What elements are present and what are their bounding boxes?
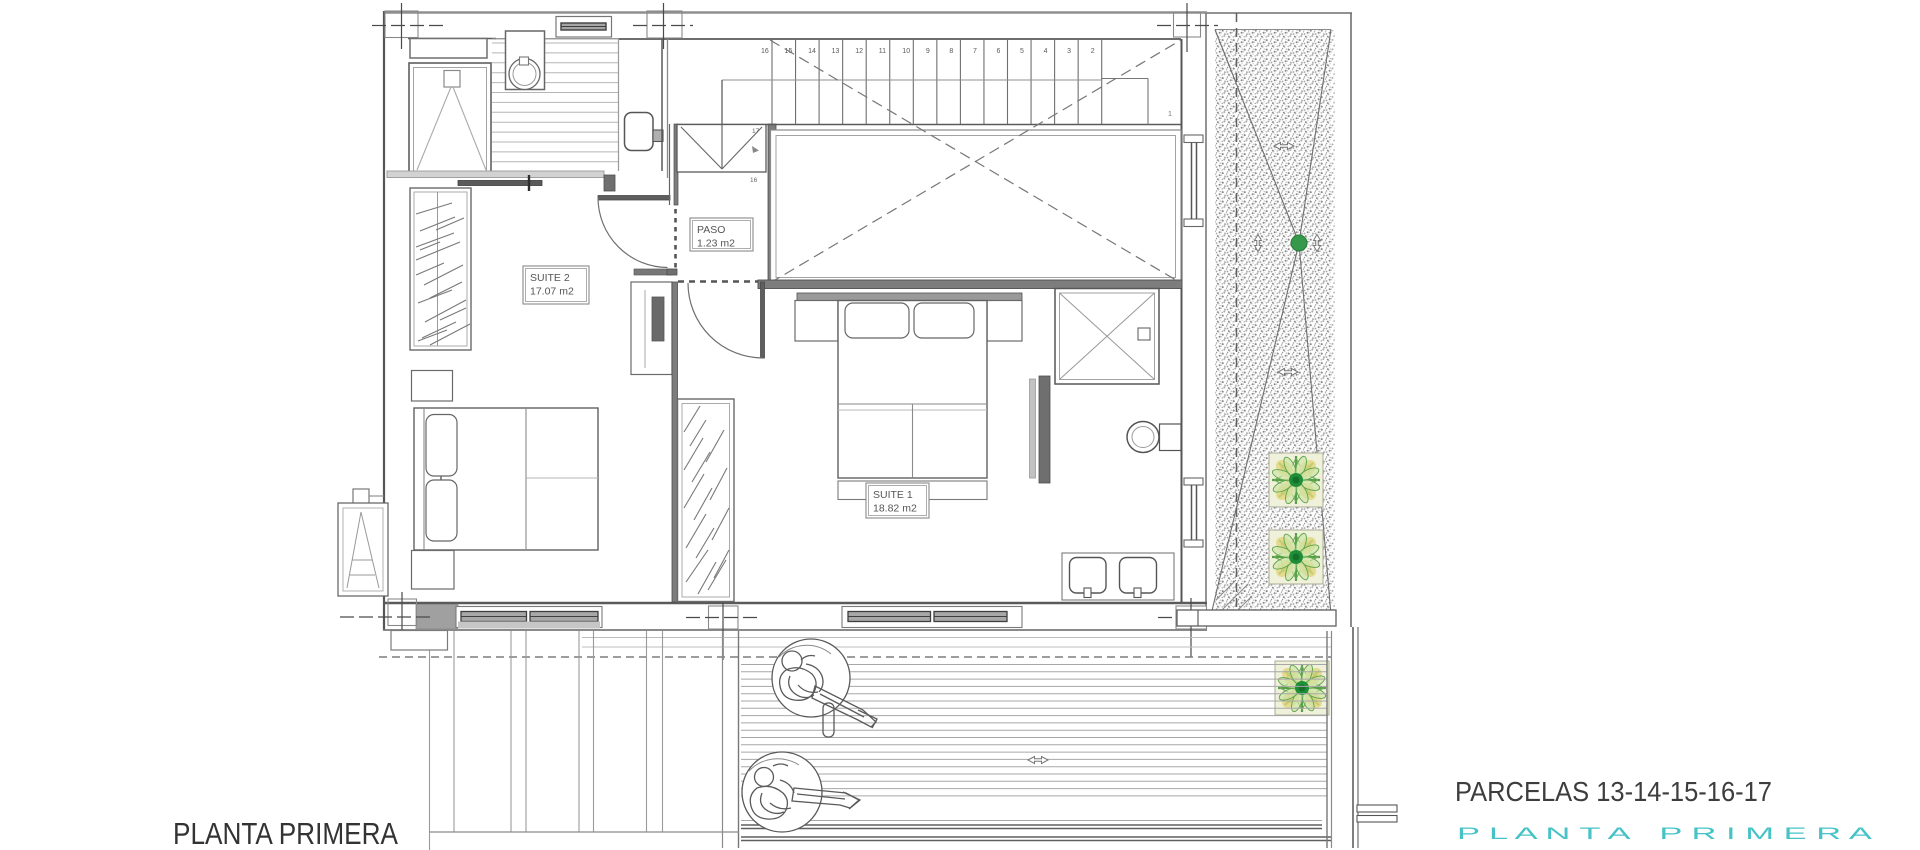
svg-text:18.82 m2: 18.82 m2 [873,503,917,515]
svg-text:7: 7 [973,48,977,55]
svg-text:PLANTA PRIMERA: PLANTA PRIMERA [173,816,398,850]
svg-text:1: 1 [1168,111,1172,118]
svg-text:12: 12 [855,48,863,55]
svg-text:9: 9 [926,48,930,55]
svg-text:SUITE 1: SUITE 1 [873,489,913,501]
svg-text:8: 8 [949,48,953,55]
svg-text:2: 2 [1091,48,1095,55]
svg-text:16: 16 [750,177,758,184]
svg-text:SUITE 2: SUITE 2 [530,272,570,284]
svg-text:4: 4 [1044,48,1048,55]
svg-text:13: 13 [832,48,840,55]
svg-text:10: 10 [902,48,910,55]
svg-text:PARCELAS 13-14-15-16-17: PARCELAS 13-14-15-16-17 [1455,776,1772,807]
svg-text:11: 11 [879,48,886,55]
svg-text:P L A N T A P R I M E R A: P L A N T A P R I M E R A [1457,825,1872,843]
svg-text:5: 5 [1020,48,1024,55]
svg-text:PASO: PASO [697,224,725,236]
svg-text:6: 6 [997,48,1001,55]
svg-text:14: 14 [808,48,816,55]
svg-text:16: 16 [761,48,769,55]
svg-text:3: 3 [1067,48,1071,55]
svg-text:17: 17 [752,128,760,135]
svg-text:17.07 m2: 17.07 m2 [530,286,574,298]
svg-text:1.23 m2: 1.23 m2 [697,238,735,250]
